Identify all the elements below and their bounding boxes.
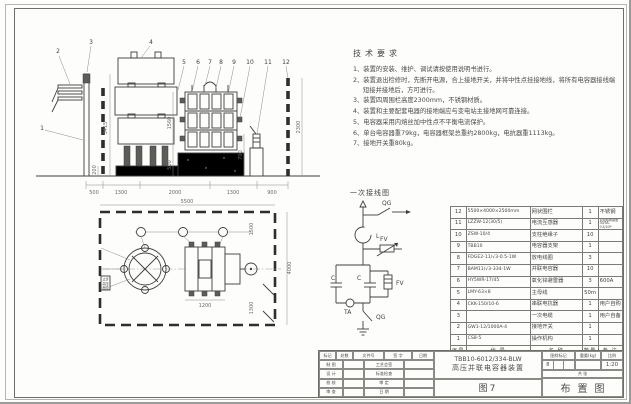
plan-view: 5500 4000 1500 1100 1300 1200 bbox=[85, 196, 320, 348]
dim-plan-topgap: 1500 bbox=[249, 223, 255, 236]
tb-sign-label: 签 字 bbox=[384, 351, 412, 360]
capacitor-rack bbox=[178, 82, 244, 176]
sign-line-2: 高压 bbox=[102, 281, 109, 286]
parts-table: 125500×4000×2500mm网状围栏1不锈钢 11LZZW-12(30/… bbox=[450, 206, 623, 358]
sign-line-3: 危险 bbox=[102, 285, 109, 290]
drawing-sheet: 3415 200 1560 500 700 2300 500 1300 2000… bbox=[0, 0, 631, 404]
reactor-stack bbox=[115, 52, 178, 176]
tb-count-label: 处数 bbox=[336, 351, 353, 360]
sign-line-1: 止步 bbox=[102, 277, 108, 282]
table-row: 9TBB10电容器支架1 bbox=[451, 241, 623, 253]
tb-approver-label: 审 定 bbox=[364, 379, 404, 388]
title-block-signatures: 标记 处数 文件号 签 字 日期 制 图 工艺会签 设 计 标准检查 校 核 bbox=[319, 351, 434, 397]
front-elevation-view: 3415 200 1560 500 700 2300 500 1300 2000… bbox=[28, 28, 328, 198]
drawing-mark-label: 图样标记 bbox=[542, 351, 575, 360]
label-ct: TA bbox=[343, 309, 352, 316]
stage-value: 8 bbox=[543, 361, 554, 369]
callout-1: 1 bbox=[40, 125, 44, 132]
dim-device: 700 bbox=[238, 150, 244, 160]
callout-6: 6 bbox=[196, 59, 200, 66]
circuit-symbols bbox=[331, 201, 412, 335]
table-row: 5LMY-63×8主母线50m bbox=[451, 288, 623, 300]
tb-date-label: 日期 bbox=[412, 351, 434, 360]
callout-4: 4 bbox=[149, 39, 153, 46]
tb-date2-label: 日 期 bbox=[364, 388, 404, 397]
callout-7: 7 bbox=[208, 59, 212, 66]
tb-blank bbox=[404, 360, 434, 369]
tb-process-label: 工艺会签 bbox=[364, 360, 404, 369]
figure-number: 图7 bbox=[434, 379, 542, 397]
callout-11: 11 bbox=[264, 59, 272, 66]
label-arrester-right: FV bbox=[396, 280, 404, 287]
dim-pole-height: 3415 bbox=[103, 122, 109, 135]
product-name: 高压并联电容器装置 bbox=[452, 364, 524, 373]
callout-12: 12 bbox=[282, 59, 290, 66]
tb-blank bbox=[343, 369, 364, 378]
dim-fence-height: 2300 bbox=[296, 121, 302, 134]
table-row: 11LZZW-12(30/5)电流互感器1双绕组同容量 30/5A-0.5/10… bbox=[451, 218, 623, 230]
scale-label: 比例 bbox=[601, 351, 623, 360]
title-block-name: TBB10-6012/334-BLW 高压并联电容器装置 图7 bbox=[434, 351, 542, 397]
dim-plan-bankwidth: 1200 bbox=[199, 303, 212, 309]
tb-blank bbox=[404, 369, 434, 378]
earthing-switch-device bbox=[250, 126, 263, 176]
circuit-title: 一次接线图 bbox=[350, 188, 390, 197]
weight-value bbox=[575, 360, 601, 370]
dim-plan-width: 5500 bbox=[181, 199, 194, 205]
tb-blank bbox=[554, 361, 565, 369]
notes-title: 技术要求 bbox=[353, 48, 621, 59]
note-item: 2、装置退出检修时，先断开电源，合上接地开关，并将中性点挂接地线，将所有电容器接… bbox=[353, 76, 621, 96]
table-row: 4CKK-150/10-6串联电抗器1用户自购 bbox=[451, 299, 623, 311]
tb-docno-label: 文件号 bbox=[353, 351, 384, 360]
dim-plan-depth: 4000 bbox=[287, 262, 293, 275]
tb-checker-label: 校 核 bbox=[319, 379, 343, 388]
note-item: 7、接地开关重80kg。 bbox=[353, 139, 621, 149]
tb-blank bbox=[343, 360, 364, 369]
note-item: 5、电容器采用内熔丝加中性点不平衡电流保护。 bbox=[353, 118, 621, 128]
scale-value: 1:20 bbox=[601, 360, 623, 370]
callout-8: 8 bbox=[219, 59, 223, 66]
tb-drafter-label: 制 图 bbox=[319, 360, 343, 369]
table-row: 1CS8-5操作机构1 bbox=[451, 334, 623, 346]
sheet-count: 共 张 bbox=[542, 370, 623, 378]
table-row: 125500×4000×2500mm网状围栏1不锈钢 bbox=[451, 207, 623, 219]
label-cap-left: C bbox=[331, 275, 335, 282]
callout-2: 2 bbox=[56, 48, 60, 55]
table-row: 6HY5WR-17/45氧化锌避雷器3600A bbox=[451, 276, 623, 288]
support-pole bbox=[52, 74, 90, 176]
drawing-title: 布置图 bbox=[542, 378, 623, 397]
table-row: 7BAM11/√3-334-1W并联电容器10 bbox=[451, 264, 623, 276]
label-qg-top: QG bbox=[382, 200, 392, 207]
tb-blank bbox=[404, 388, 434, 397]
callout-10: 10 bbox=[246, 59, 254, 66]
note-item: 6、单台电容器重79kg，电容器框架总重约2800kg，电抗器重1113kg。 bbox=[353, 129, 621, 139]
corner-braces bbox=[263, 284, 274, 322]
tb-reviewer-label: 审 查 bbox=[319, 388, 343, 397]
tb-blank bbox=[564, 361, 574, 369]
dim-plinth: 500 bbox=[167, 160, 173, 170]
tb-mark-label: 标记 bbox=[319, 351, 336, 360]
callout-9: 9 bbox=[232, 59, 236, 66]
table-row: 2GW1-12/1000A-4接地开关1 bbox=[451, 322, 623, 334]
technical-notes: 技术要求 1、装置的安装、维护、调试请按使用说明书进行。 2、装置退出检修时，先… bbox=[353, 48, 621, 150]
warning-sign: 止步 高压 危险 bbox=[101, 276, 110, 290]
tb-blank bbox=[404, 379, 434, 388]
tb-standard-label: 标准检查 bbox=[364, 369, 404, 378]
weight-label: 重量(kg) bbox=[575, 351, 601, 360]
table-row: 8FDGE2-11/√3-0.5-1W放电线圈3 bbox=[451, 253, 623, 265]
tb-blank bbox=[343, 388, 364, 397]
note-item: 4、装置和主要配套电器的接地端应与变电站主接地网可靠连接。 bbox=[353, 107, 621, 117]
callout-5: 5 bbox=[182, 59, 186, 66]
label-arrester-top: FV bbox=[380, 236, 388, 243]
tb-blank bbox=[343, 379, 364, 388]
label-qg-bottom: QG bbox=[376, 314, 386, 321]
callout-3: 3 bbox=[89, 39, 93, 46]
dim-base: 200 bbox=[92, 165, 98, 175]
table-row: 3一次电缆1用户自备 bbox=[451, 311, 623, 323]
dim-plan-bottomgap: 1300 bbox=[249, 302, 255, 315]
title-block-meta: 图样标记 重量(kg) 比例 8 1:20 共 张 布置图 bbox=[542, 351, 623, 397]
tb-designer-label: 设 计 bbox=[319, 369, 343, 378]
note-item: 1、装置的安装、维护、调试请按使用说明书进行。 bbox=[353, 65, 621, 75]
table-row: 10ZSW-10/4支柱绝缘子10 bbox=[451, 230, 623, 242]
dim-rack-height: 1560 bbox=[167, 117, 173, 130]
label-cap-right: C bbox=[357, 275, 361, 282]
title-block: 标记 处数 文件号 签 字 日期 制 图 工艺会签 设 计 标准检查 校 核 bbox=[318, 350, 624, 398]
note-item: 3、装置四周围栏高度2300mm，不锈钢材质。 bbox=[353, 96, 621, 106]
one-line-diagram: 一次接线图 bbox=[330, 183, 460, 348]
